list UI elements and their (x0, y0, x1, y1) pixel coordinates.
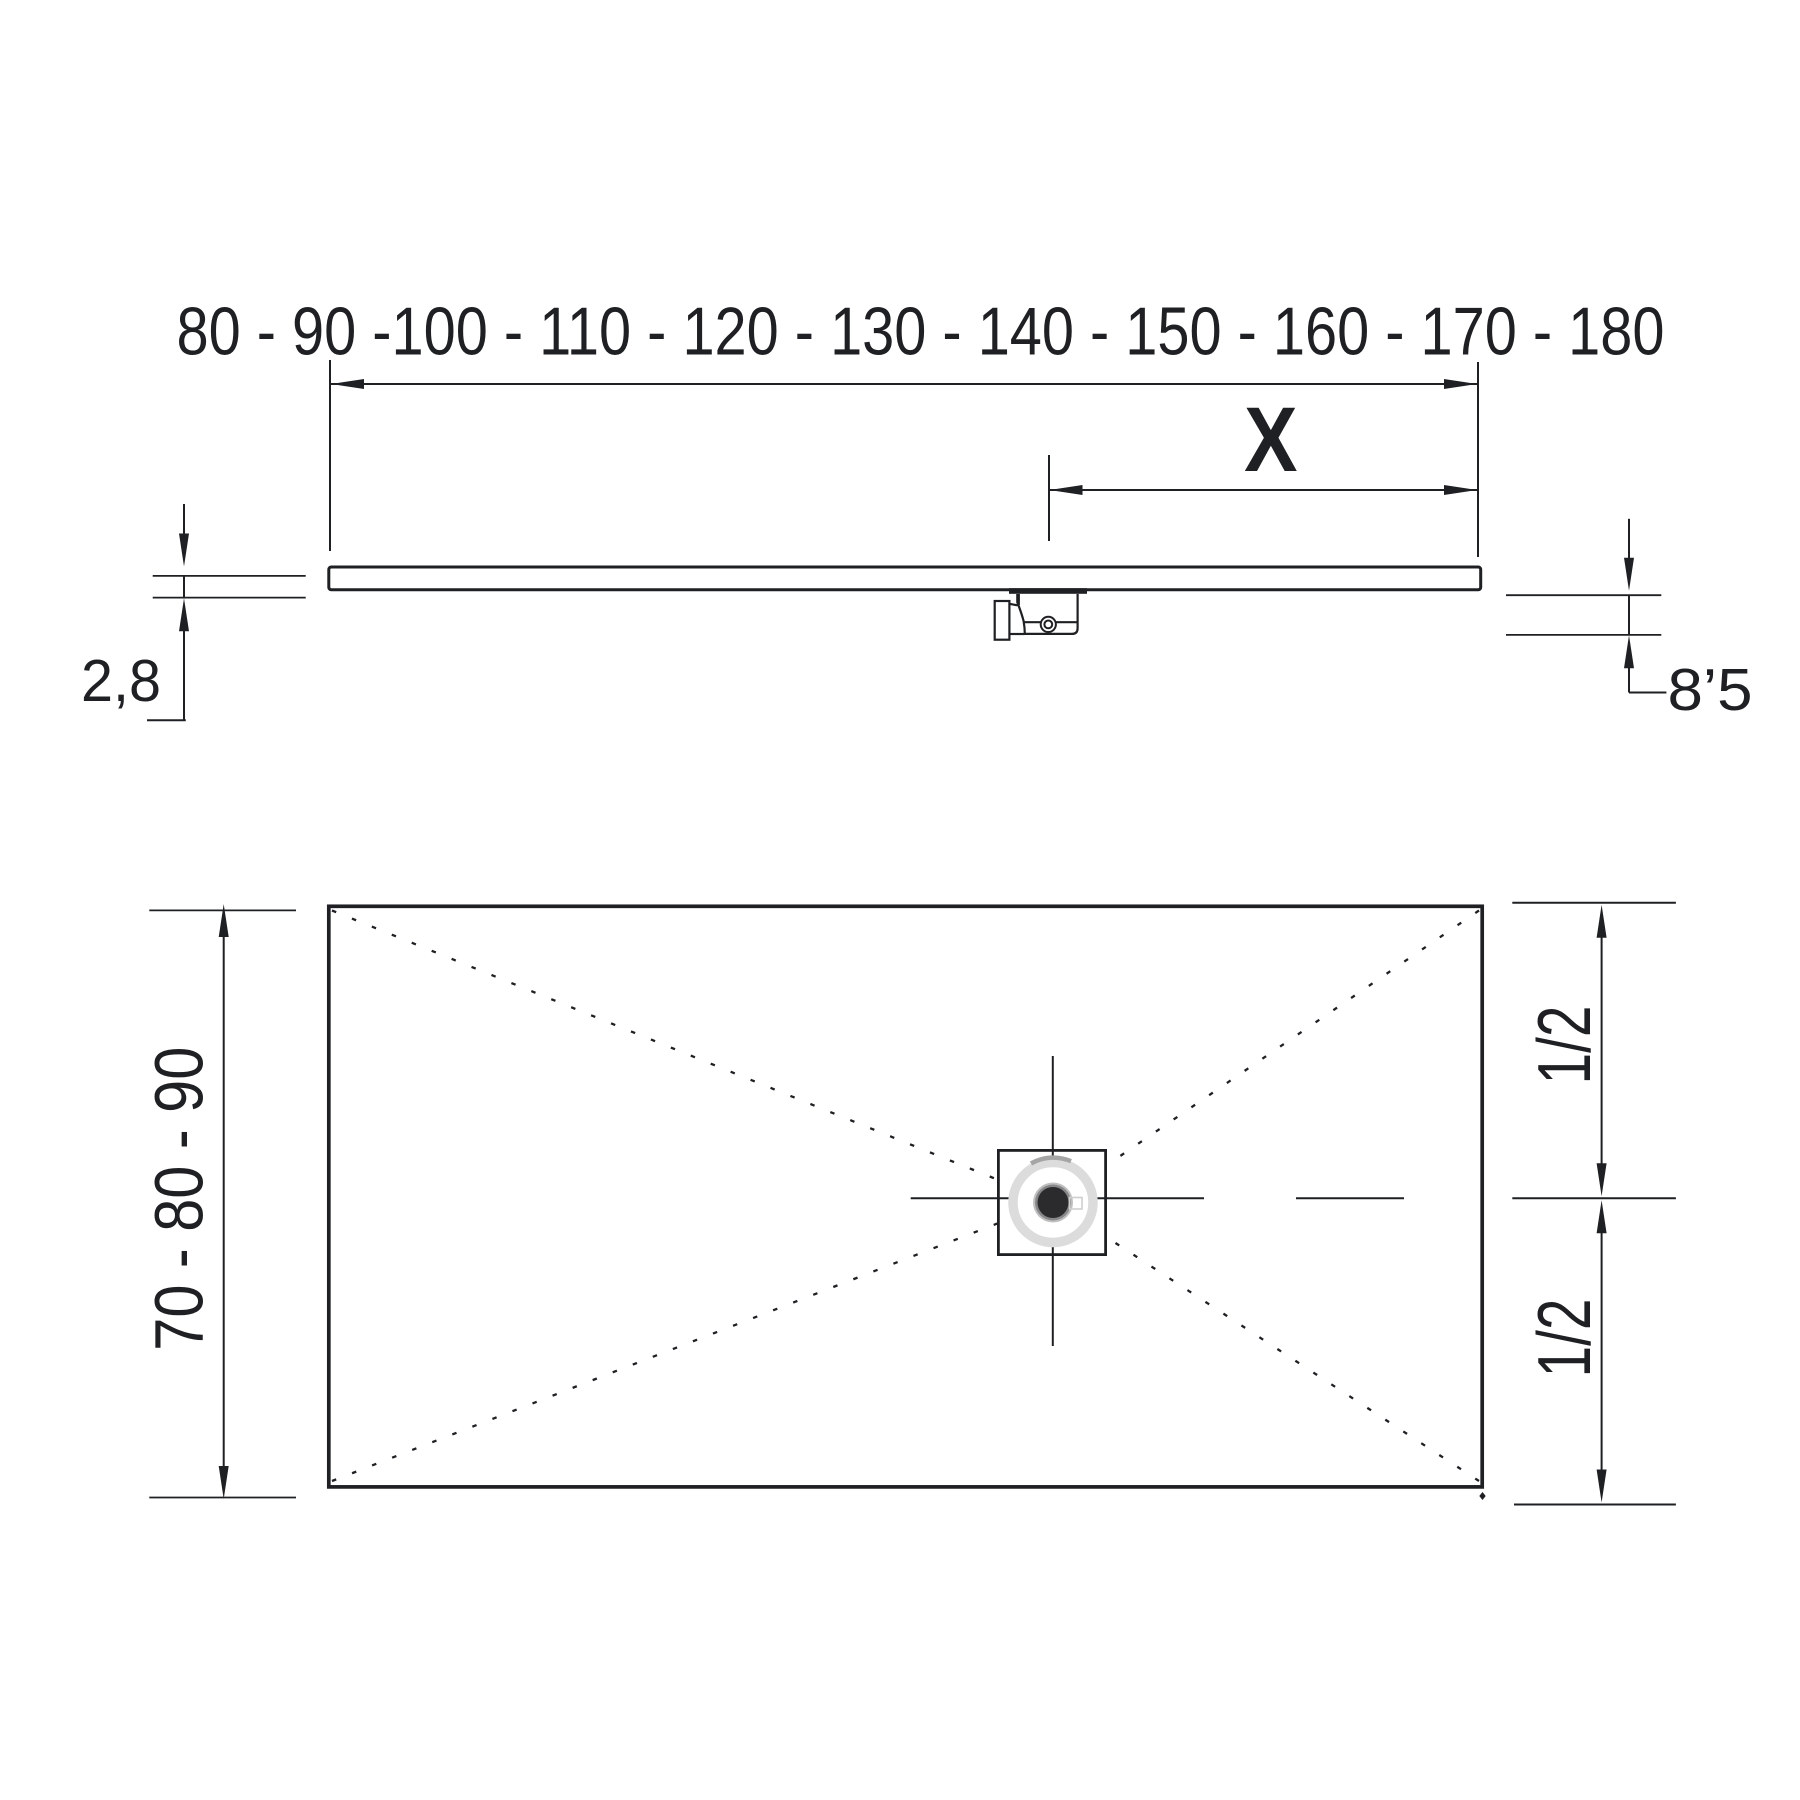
svg-text:2,8: 2,8 (81, 648, 161, 714)
svg-text:70 - 80 - 90: 70 - 80 - 90 (140, 1047, 217, 1351)
svg-text:8’5: 8’5 (1668, 657, 1753, 723)
svg-text:1/2: 1/2 (1522, 1299, 1606, 1378)
svg-text:1/2: 1/2 (1522, 1006, 1606, 1085)
svg-text:X: X (1244, 389, 1297, 491)
svg-text:80 - 90 -100 - 110 - 120 - 130: 80 - 90 -100 - 110 - 120 - 130 - 140 - 1… (177, 294, 1665, 370)
